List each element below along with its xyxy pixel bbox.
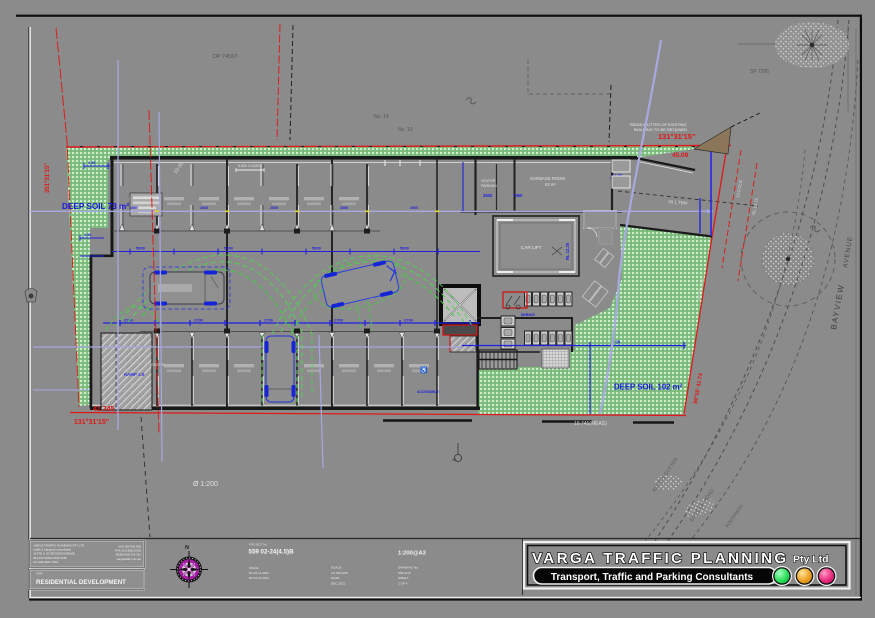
svg-text:2700: 2700 <box>404 318 414 323</box>
svg-text:19.745(MEAS): 19.745(MEAS) <box>574 421 607 427</box>
svg-text:M/BIKE: M/BIKE <box>521 312 535 317</box>
svg-text:Ø 1:200: Ø 1:200 <box>193 481 218 488</box>
svg-text:559-02 B: 559-02 B <box>398 571 411 575</box>
svg-text:6.600 CLEAR: 6.600 CLEAR <box>238 164 260 168</box>
svg-text:2700: 2700 <box>264 318 274 323</box>
svg-text:N: N <box>185 545 189 551</box>
svg-text:BUILDING TO BE RETAINED: BUILDING TO BE RETAINED <box>634 127 687 132</box>
svg-text:VARGA TRAFFIC PLANNING: VARGA TRAFFIC PLANNING <box>532 550 788 567</box>
svg-text:SP 7206: SP 7206 <box>750 69 769 75</box>
svg-text:2600: 2600 <box>270 206 278 210</box>
svg-text:VISITOR: VISITOR <box>481 179 496 183</box>
svg-text:131°31'15": 131°31'15" <box>658 132 696 141</box>
svg-text:GARBAGE ROOM: GARBAGE ROOM <box>530 176 565 181</box>
svg-text:♿: ♿ <box>420 366 428 374</box>
svg-text:45.09: 45.09 <box>672 152 689 159</box>
svg-text:2700: 2700 <box>334 318 344 323</box>
svg-text:Pty Ltd: Pty Ltd <box>793 554 829 566</box>
svg-text:63 m²: 63 m² <box>545 182 556 187</box>
svg-text:2600: 2600 <box>130 206 138 210</box>
svg-text:2600: 2600 <box>200 206 208 210</box>
svg-text:1.35: 1.35 <box>88 161 95 165</box>
svg-text:5800: 5800 <box>400 246 410 251</box>
svg-text:2600: 2600 <box>410 206 418 210</box>
svg-text:RAMP 1:8: RAMP 1:8 <box>124 372 145 377</box>
svg-text:No. 14: No. 14 <box>374 114 389 120</box>
svg-text:DEEP SOIL 102 m²: DEEP SOIL 102 m² <box>614 383 683 392</box>
svg-text:RL 12.35: RL 12.35 <box>565 242 570 260</box>
svg-text:DRAWING No:: DRAWING No: <box>398 566 419 570</box>
svg-text:2700: 2700 <box>194 318 204 323</box>
svg-text:351°31'15": 351°31'15" <box>45 163 51 193</box>
svg-text:DATE:: DATE: <box>331 576 340 580</box>
svg-text:PARKING: PARKING <box>481 184 497 188</box>
svg-text:559 02-24(4.5)B: 559 02-24(4.5)B <box>249 549 295 556</box>
svg-text:PH (02) 9622 7034: PH (02) 9622 7034 <box>34 560 59 564</box>
svg-text:AS SHOWN: AS SHOWN <box>331 571 348 575</box>
svg-text:131°31'15": 131°31'15" <box>74 418 109 426</box>
svg-text:DP 74557: DP 74557 <box>213 54 237 60</box>
svg-text:ISSUE:: ISSUE: <box>249 566 259 570</box>
svg-text:1:200@A3: 1:200@A3 <box>398 551 427 557</box>
svg-text:5800: 5800 <box>312 246 322 251</box>
svg-text:5800: 5800 <box>136 246 146 251</box>
svg-text:PROJECT No:: PROJECT No: <box>249 543 268 547</box>
svg-text:vargatraffic.com.au: vargatraffic.com.au <box>116 557 141 561</box>
svg-text:ACCESSIBLE: ACCESSIBLE <box>417 390 440 394</box>
svg-text:Transport, Traffic and Parking: Transport, Traffic and Parking Consultan… <box>551 572 754 583</box>
svg-text:25: 25 <box>452 457 457 462</box>
svg-text:1.00: 1.00 <box>84 233 91 237</box>
svg-text:SHEET:: SHEET: <box>398 576 409 580</box>
svg-text:SCALE:: SCALE: <box>331 566 342 570</box>
svg-text:DEEP SOIL 73 m²: DEEP SOIL 73 m² <box>62 202 129 211</box>
svg-text:2600: 2600 <box>483 193 493 198</box>
svg-text:7060: 7060 <box>513 193 523 198</box>
svg-text:No. 16: No. 16 <box>398 127 413 133</box>
svg-text:FOR:: FOR: <box>36 572 43 576</box>
svg-text:RESIDENTIAL DEVELOPMENT: RESIDENTIAL DEVELOPMENT <box>36 579 126 586</box>
svg-text:2600: 2600 <box>340 206 348 210</box>
svg-text:DEC 2021: DEC 2021 <box>331 581 346 585</box>
svg-text:41.745: 41.745 <box>93 406 115 413</box>
svg-text:B1 20.11.2021: B1 20.11.2021 <box>249 571 269 575</box>
svg-text:5800: 5800 <box>224 246 234 251</box>
svg-text:CAR LIFT: CAR LIFT <box>521 245 542 250</box>
svg-text:2 OF 4: 2 OF 4 <box>398 581 408 585</box>
svg-text:B2 04.12.2021: B2 04.12.2021 <box>249 576 269 580</box>
